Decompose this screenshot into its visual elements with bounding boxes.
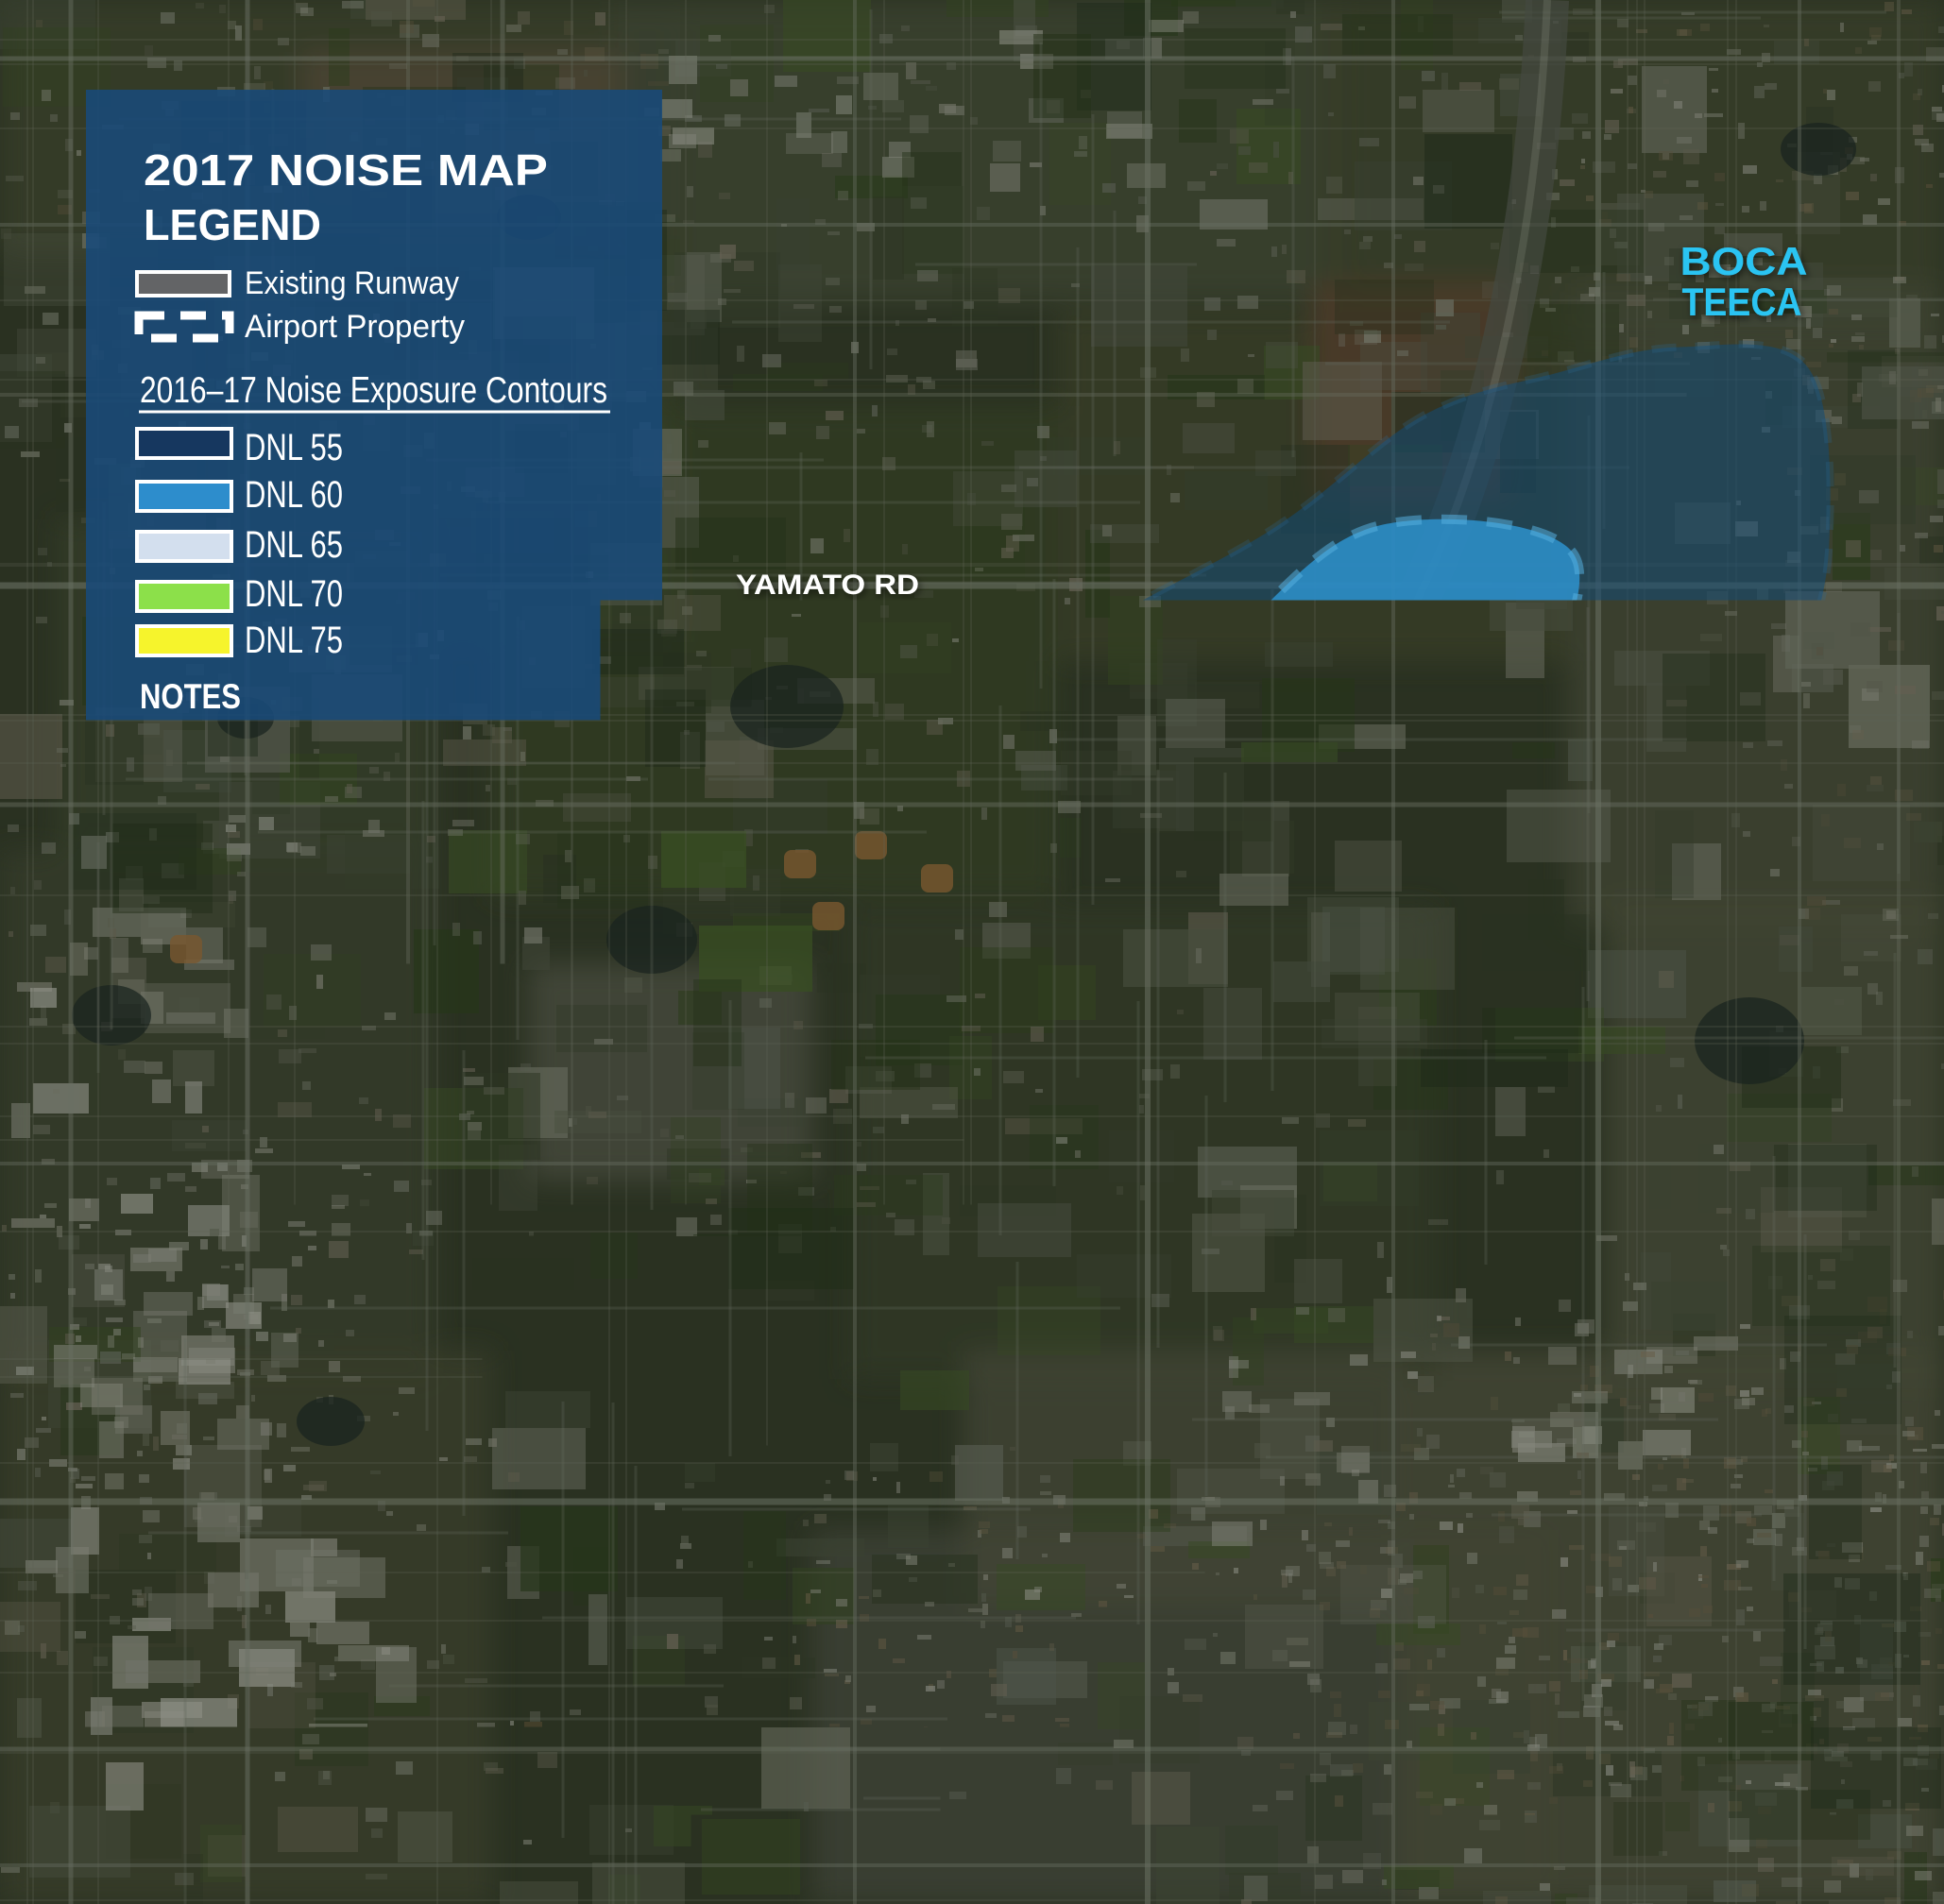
svg-text:2017 NOISE MAP: 2017 NOISE MAP	[144, 145, 548, 195]
svg-text:SPANISH RIVER BLVD: SPANISH RIVER BLVD	[701, 779, 1028, 810]
svg-text:BOCA: BOCA	[22, 1475, 148, 1521]
svg-text:Sound Level: Sound Level	[234, 761, 392, 801]
svg-text:5: 5	[738, 1232, 759, 1276]
svg-text:YAMATO RD: YAMATO RD	[736, 569, 919, 601]
svg-text:NOTES: NOTES	[140, 677, 241, 716]
svg-text:2016–17 Noise Exposure Contour: 2016–17 Noise Exposure Contours	[140, 370, 607, 411]
svg-text:GLADES RD: GLADES RD	[945, 1479, 1116, 1510]
svg-text:LEGEND: LEGEND	[144, 200, 321, 249]
svg-text:DNL = Day Night Average: DNL = Day Night Average	[140, 725, 486, 765]
svg-text:HILL: HILL	[1622, 684, 1726, 728]
svg-text:23: 23	[1222, 828, 1269, 875]
svg-text:DNL 65: DNL 65	[245, 524, 343, 566]
svg-text:DNL 55: DNL 55	[245, 427, 343, 468]
svg-text:FAU: FAU	[1149, 1288, 1229, 1334]
svg-text:Airport Property: Airport Property	[245, 309, 465, 345]
svg-text:KNOB: KNOB	[1607, 640, 1742, 685]
svg-text:AIRPORT: AIRPORT	[947, 1046, 1144, 1103]
svg-text:MALL: MALL	[22, 1519, 142, 1565]
svg-text:BOCA: BOCA	[1680, 239, 1808, 283]
svg-text:DNL 70: DNL 70	[245, 573, 343, 615]
svg-text:Existing Runway: Existing Runway	[245, 265, 459, 301]
svg-text:DNL 75: DNL 75	[245, 620, 343, 661]
svg-text:DNL 60: DNL 60	[245, 474, 343, 516]
svg-text:BOCA RATON: BOCA RATON	[895, 997, 1197, 1054]
svg-text:TEECA: TEECA	[1682, 280, 1802, 324]
